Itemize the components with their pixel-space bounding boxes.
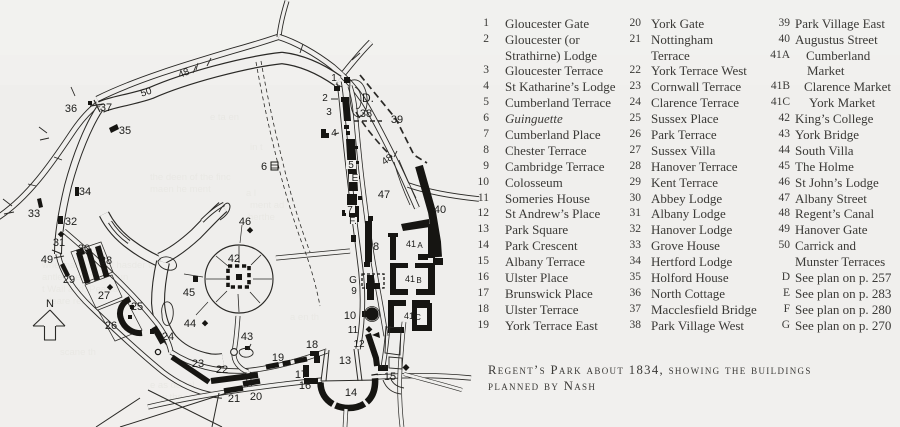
svg-text:herthe: herthe — [248, 212, 275, 223]
svg-text:41: 41 — [404, 311, 414, 321]
svg-text:B: B — [416, 276, 421, 285]
svg-text:41: 41 — [406, 239, 416, 249]
svg-text:a l: a l — [246, 188, 256, 199]
svg-text:15: 15 — [384, 371, 396, 383]
svg-text:29: 29 — [63, 274, 75, 286]
svg-text:a en th: a en th — [290, 312, 319, 323]
svg-text:30: 30 — [78, 243, 90, 255]
svg-text:14: 14 — [345, 387, 357, 399]
svg-text:20: 20 — [250, 391, 262, 403]
svg-text:ment ad: ment ad — [250, 200, 284, 211]
svg-text:26: 26 — [105, 320, 117, 332]
svg-text:7: 7 — [347, 205, 353, 216]
svg-text:A: A — [417, 241, 423, 250]
svg-text:24: 24 — [162, 331, 174, 343]
svg-text:18: 18 — [306, 339, 318, 351]
svg-text:10: 10 — [344, 310, 356, 322]
svg-text:25: 25 — [131, 301, 143, 313]
svg-text:6: 6 — [261, 161, 267, 173]
svg-text:in t: in t — [250, 142, 263, 153]
svg-text:19: 19 — [272, 352, 284, 364]
svg-text:F.: F. — [349, 216, 357, 227]
svg-text:49: 49 — [41, 254, 53, 266]
svg-text:G: G — [349, 275, 357, 286]
svg-text:32: 32 — [65, 216, 77, 228]
svg-text:8: 8 — [373, 241, 379, 253]
svg-text:42: 42 — [228, 253, 240, 265]
svg-text:1: 1 — [331, 73, 337, 84]
svg-text:38: 38 — [360, 108, 372, 120]
svg-text:31: 31 — [53, 237, 65, 249]
svg-text:2: 2 — [322, 93, 328, 104]
svg-text:43: 43 — [241, 331, 253, 343]
svg-text:27: 27 — [98, 290, 110, 302]
svg-text:3: 3 — [326, 107, 332, 118]
svg-text:e ta en: e ta en — [210, 112, 239, 123]
svg-text:17: 17 — [295, 369, 307, 381]
svg-text:N: N — [46, 298, 54, 310]
svg-text:D.: D. — [362, 91, 374, 105]
svg-text:44: 44 — [184, 318, 196, 330]
svg-text:maen he ment: maen he ment — [150, 184, 211, 195]
svg-text:28: 28 — [100, 255, 112, 267]
svg-text:11: 11 — [348, 325, 359, 336]
svg-text:35: 35 — [119, 125, 131, 137]
svg-text:21: 21 — [228, 393, 240, 405]
svg-text:16: 16 — [299, 380, 311, 392]
svg-text:39: 39 — [391, 114, 403, 126]
svg-text:36: 36 — [65, 103, 77, 115]
svg-text:scane th: scane th — [60, 347, 96, 358]
svg-text:E: E — [352, 173, 359, 184]
svg-text:46: 46 — [239, 216, 251, 228]
svg-text:C: C — [415, 313, 421, 322]
svg-text:33: 33 — [28, 208, 40, 220]
svg-text:41: 41 — [405, 274, 415, 284]
svg-text:34: 34 — [79, 186, 91, 198]
svg-text:13: 13 — [339, 355, 351, 367]
svg-text:47: 47 — [378, 189, 390, 201]
svg-text:37: 37 — [100, 102, 112, 114]
svg-text:the deen of the finc: the deen of the finc — [150, 172, 231, 183]
svg-text:40: 40 — [434, 204, 446, 216]
svg-text:12: 12 — [353, 339, 365, 350]
svg-text:45: 45 — [183, 287, 195, 299]
svg-text:22: 22 — [216, 364, 228, 376]
svg-text:23: 23 — [192, 358, 204, 370]
svg-text:5: 5 — [348, 160, 354, 171]
svg-text:9: 9 — [351, 286, 357, 297]
